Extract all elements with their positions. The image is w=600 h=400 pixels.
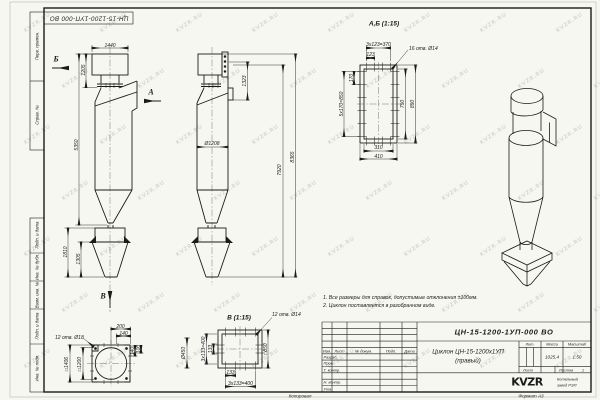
top-stamp-code: ЦН-15-1200-1УП-000 ВО bbox=[49, 15, 128, 22]
company-line1: Котельный bbox=[557, 377, 578, 382]
drawing-linework bbox=[0, 0, 600, 400]
col-izm: Изм. bbox=[323, 348, 331, 353]
format-label: Формат А3 bbox=[518, 393, 543, 398]
dim-sq850: □850 bbox=[263, 343, 269, 354]
margin-label: Инв. № дубл. bbox=[35, 254, 40, 280]
dim-100-right: 100 bbox=[136, 345, 142, 353]
margin-label: Инв. № подл. bbox=[35, 355, 40, 382]
col-list: Лист bbox=[334, 348, 344, 353]
drawing-sheet: KVZR.RUKVZR.RUKVZR.RUKVZR.RUKVZR.RUKVZR.… bbox=[0, 0, 600, 400]
doc-number: ЦН-15-1200-1УП-000 ВО bbox=[455, 327, 554, 336]
dim-790: 790 bbox=[400, 100, 406, 108]
dimension-lines bbox=[65, 45, 418, 389]
dim-310: 310 bbox=[374, 145, 382, 151]
col-date: Дата bbox=[404, 348, 414, 353]
view-arrow-label-v: В bbox=[100, 292, 105, 301]
dim-1205: 1205 bbox=[81, 64, 87, 75]
dim-7920: 7920 bbox=[277, 164, 283, 175]
margin-label: Перв. примен. bbox=[35, 32, 40, 61]
margin-label: Подп. и дата bbox=[35, 313, 40, 340]
dim-170: 170 bbox=[349, 74, 355, 82]
kvzr-logo: KVZR bbox=[511, 376, 542, 389]
dim-200: 200 bbox=[116, 324, 124, 330]
dim-1810: 1810 bbox=[63, 246, 69, 257]
dim-5350: 5350 bbox=[74, 139, 80, 150]
scale-value: 1:50 bbox=[573, 355, 582, 360]
dim-8365: 8365 bbox=[290, 151, 296, 162]
detail-ab-title: А,Б (1:15) bbox=[369, 21, 399, 28]
row-prov: Пров. bbox=[324, 361, 334, 366]
margin-label: Взам. инв. № bbox=[35, 282, 40, 309]
detail-v-title: В (1:15) bbox=[227, 315, 251, 322]
row-nkontr: Н. контр. bbox=[324, 380, 342, 385]
view-arrow-label-a: А bbox=[148, 88, 153, 97]
dim-140-top: 140 bbox=[119, 331, 127, 337]
holes-16-d14: 16 отв. Ø14 bbox=[409, 46, 438, 52]
scale-label: Масштаб bbox=[568, 342, 586, 347]
dim-5x170: 5х170=850 bbox=[339, 92, 345, 117]
section-arrows bbox=[52, 68, 161, 308]
dim-1440: 1440 bbox=[104, 43, 115, 49]
dim-sq1406: □1406 bbox=[64, 356, 70, 370]
isometric-view-outline bbox=[502, 89, 556, 287]
holes-12-d18: 12 отв. Ø18 bbox=[55, 335, 84, 341]
copied-label: Копировал bbox=[289, 393, 312, 398]
sheet-label: Лист bbox=[523, 367, 533, 372]
dim-d450: Ø450 bbox=[181, 347, 187, 359]
dim-3x133-left: 3х133=400 bbox=[201, 337, 207, 362]
dim-133-bottom: 133 bbox=[226, 370, 234, 376]
col-doc: № докум. bbox=[355, 348, 372, 353]
sheet-frame bbox=[10, 2, 596, 397]
dim-890: 890 bbox=[410, 100, 416, 108]
dim-133-left: 133 bbox=[208, 345, 214, 353]
mass-value: 1025,4 bbox=[545, 355, 559, 360]
row-razrab: Разраб. bbox=[324, 355, 338, 360]
dim-diameter-1208: Ø1208 bbox=[204, 141, 219, 147]
row-tkontr: Т. контр. bbox=[324, 367, 341, 372]
dim-410: 410 bbox=[374, 154, 382, 160]
note-1: 1. Все размеры для справок, допустимые о… bbox=[323, 295, 478, 301]
dim-140-right: 140 bbox=[130, 347, 136, 355]
drawing-name-line2: (правый) bbox=[455, 358, 481, 365]
note-2: 2. Циклон поставляется в разобранном вид… bbox=[323, 303, 436, 309]
company-line2: завод РЭП bbox=[557, 383, 576, 388]
sheets-value: 1 bbox=[582, 367, 584, 372]
dim-1323: 1323 bbox=[242, 75, 248, 86]
centerlines bbox=[87, 47, 400, 387]
dim-123: 123 bbox=[366, 52, 374, 58]
dim-sq1200: □1200 bbox=[77, 356, 83, 370]
col-sign: Подп. bbox=[386, 348, 396, 353]
drawing-name-line1: Циклон ЦН-15-1200х1УП bbox=[432, 349, 504, 356]
dim-3x123: 3х123=370 bbox=[366, 42, 391, 48]
mass-label: Масса bbox=[546, 342, 558, 347]
sheets-label: Листов bbox=[559, 367, 573, 372]
row-utv: Утв. bbox=[324, 386, 333, 391]
holes-12-d14: 12 отв. Ø14 bbox=[272, 312, 301, 318]
lit-label: Лит. bbox=[525, 342, 534, 347]
margin-label: Справ. № bbox=[35, 105, 40, 125]
view-arrow-label-b: Б bbox=[53, 55, 58, 64]
dim-3x133-bottom: 3х133=400 bbox=[228, 381, 253, 387]
dim-1305: 1305 bbox=[76, 253, 82, 264]
margin-label: Подп. и дата bbox=[35, 222, 40, 249]
